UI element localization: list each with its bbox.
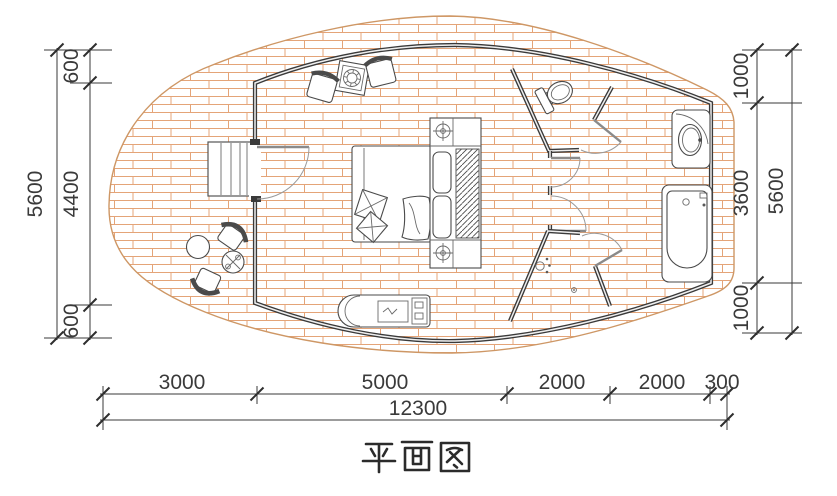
- dim-label-2000-b: 2000: [639, 371, 686, 394]
- dim-label-left-600-bottom: 600: [60, 303, 83, 338]
- dim-left: 5600 600 4400 600: [24, 44, 112, 345]
- coffee-table-icon: [335, 61, 370, 96]
- bed-icon: [352, 146, 432, 242]
- duvet-fold: [402, 196, 431, 240]
- dim-right: 1000 3600 1000 5600: [730, 44, 802, 340]
- dim-label-300: 300: [704, 371, 739, 394]
- page-title-text: 平面图: [360, 436, 474, 478]
- dim-label-right-1000-top: 1000: [730, 53, 753, 100]
- dim-label-left-600-top: 600: [60, 48, 83, 83]
- dim-label-5000: 5000: [362, 371, 409, 394]
- floor-plan-canvas: 5600 600 4400 600 1000 3600 1000 5600 30…: [0, 0, 837, 496]
- dim-label-3000: 3000: [159, 371, 206, 394]
- dim-label-right-3600: 3600: [730, 170, 753, 217]
- dim-bottom: 3000 5000 2000 2000 300 12300: [97, 371, 740, 430]
- dim-label-right-1000-bottom: 1000: [730, 285, 753, 332]
- dim-label-left-4400: 4400: [60, 171, 83, 218]
- dim-label-2000-a: 2000: [539, 371, 586, 394]
- bathtub-icon: [662, 185, 712, 282]
- dim-label-left-total: 5600: [24, 171, 47, 218]
- deck-table-icon: [187, 236, 210, 259]
- wardrobe-hanger-icon: [456, 149, 479, 238]
- dim-label-right-total: 5600: [765, 168, 788, 215]
- bench-icon: [338, 295, 430, 327]
- wardrobe-icon: [430, 118, 481, 268]
- page-title: 平面图: [360, 436, 474, 478]
- stairs-icon: [208, 142, 254, 196]
- sink-icon: [672, 110, 710, 168]
- deck-side-table-icon: [222, 251, 244, 273]
- floor-plan-page: 5600 600 4400 600 1000 3600 1000 5600 30…: [0, 0, 837, 496]
- dim-label-12300: 12300: [389, 397, 447, 420]
